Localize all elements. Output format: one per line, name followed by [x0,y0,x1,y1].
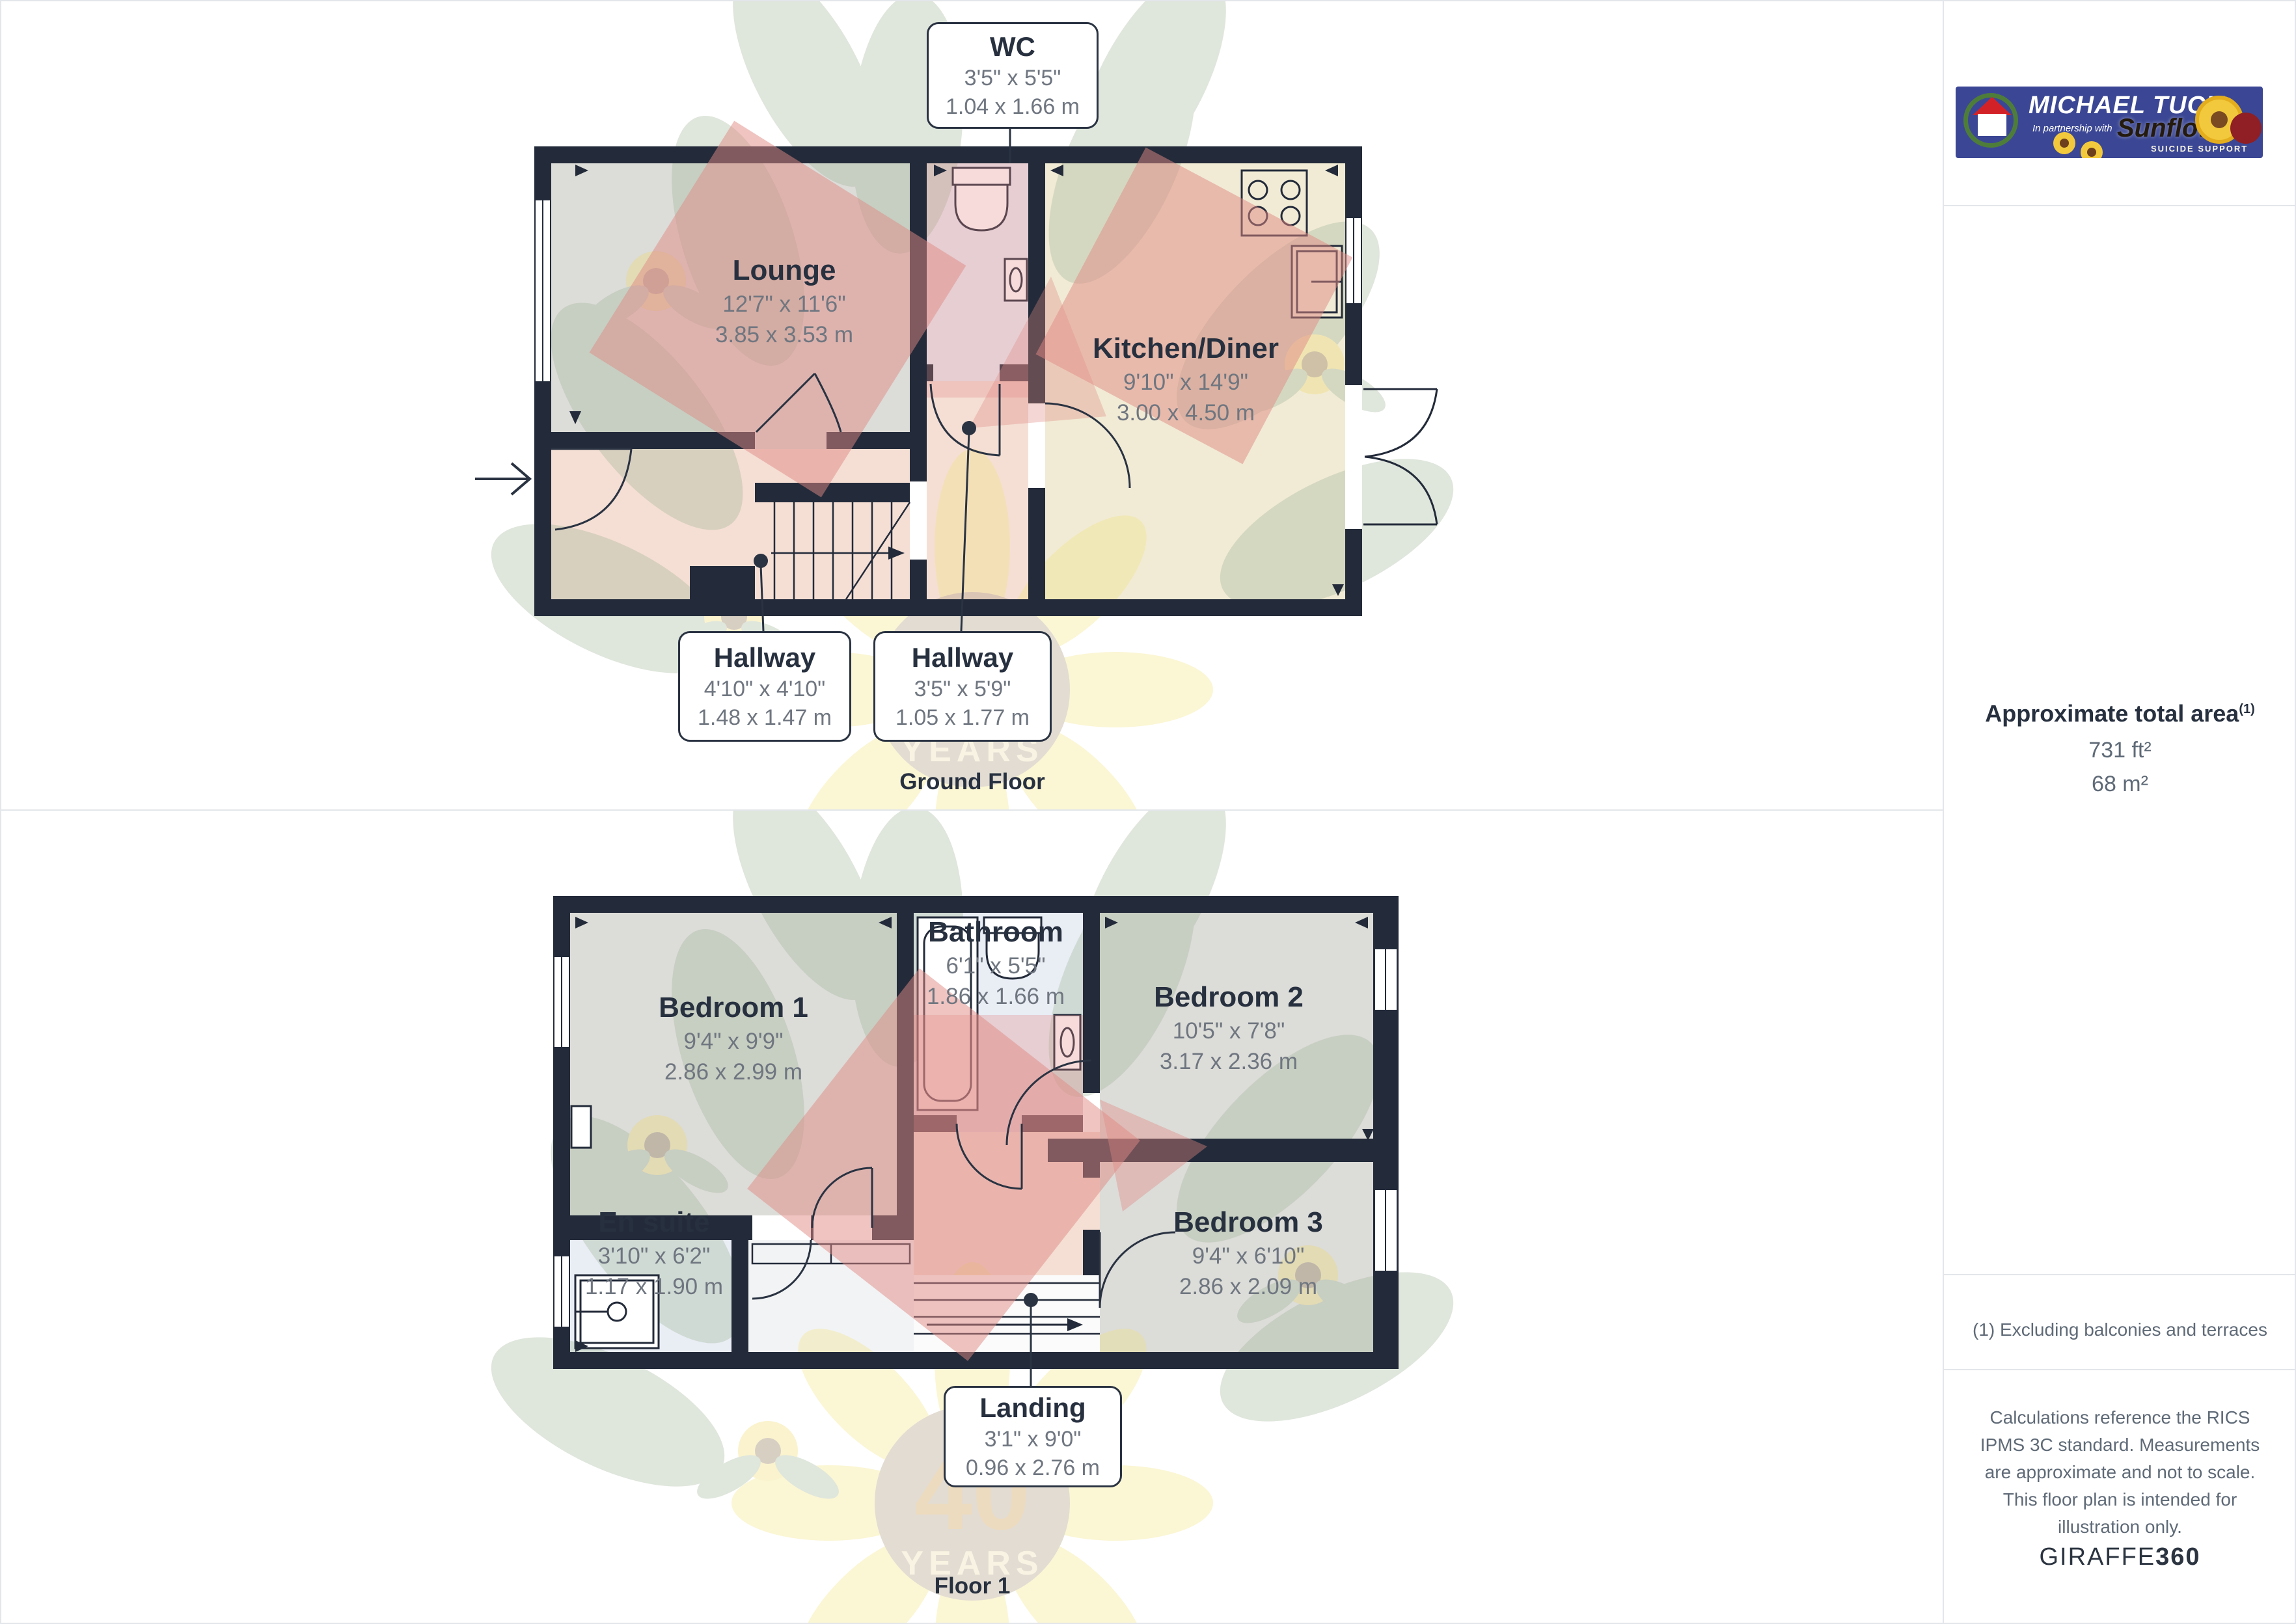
partnership-text: In partnership with [2032,123,2112,134]
footnote-balconies: (1) Excluding balconies and terraces [1944,1319,2296,1340]
area-ft: 731 ft² [1944,738,2296,763]
callout-hallway-2: Hallway 3'5" x 5'9" 1.05 x 1.77 m [873,631,1052,742]
house-icon [1978,114,2006,136]
area-m: 68 m² [1944,772,2296,797]
giraffe360-logo: GIRAFFE360 [1944,1543,2296,1571]
floor-1-plan [0,809,1943,1624]
area-footnote-ref: (1) [2239,702,2254,716]
callout-hallway-1: Hallway 4'10" x 4'10" 1.48 x 1.47 m [678,631,851,742]
sidebar-divider-disclaimer [1944,1369,2296,1370]
house-roof-icon [1973,97,2012,115]
sunflower-small-icon-2 [2081,141,2103,158]
callout-landing: Landing 3'1" x 9'0" 0.96 x 2.76 m [944,1386,1122,1487]
award-badge-icon [2230,113,2262,144]
main-horizontal-divider [0,809,1943,811]
entry-arrow-icon [475,463,530,494]
ensuite-sink [571,1106,591,1148]
sidebar-divider-note [1944,1274,2296,1275]
floor-1-caption: Floor 1 [810,1573,1135,1599]
shower [575,1275,659,1348]
callout-wc: WC 3'5" x 5'5" 1.04 x 1.66 m [927,22,1099,129]
sidebar-divider-logo [1944,205,2296,206]
ground-floor-caption: Ground Floor [810,769,1135,795]
stairs [755,502,910,599]
michael-tuck-logo: MICHAEL TUCK In partnership with Sunflow… [1956,87,2263,158]
charity-subtitle: SUICIDE SUPPORT [2151,144,2248,154]
sidebar-divider [1943,0,1944,1624]
bathroom-toilet [984,917,1041,979]
sunflower-small-icon [2053,132,2075,154]
disclaimer-text: Calculations reference the RICS IPMS 3C … [1944,1404,2296,1541]
approx-area-title: Approximate total area(1) [1944,700,2296,727]
